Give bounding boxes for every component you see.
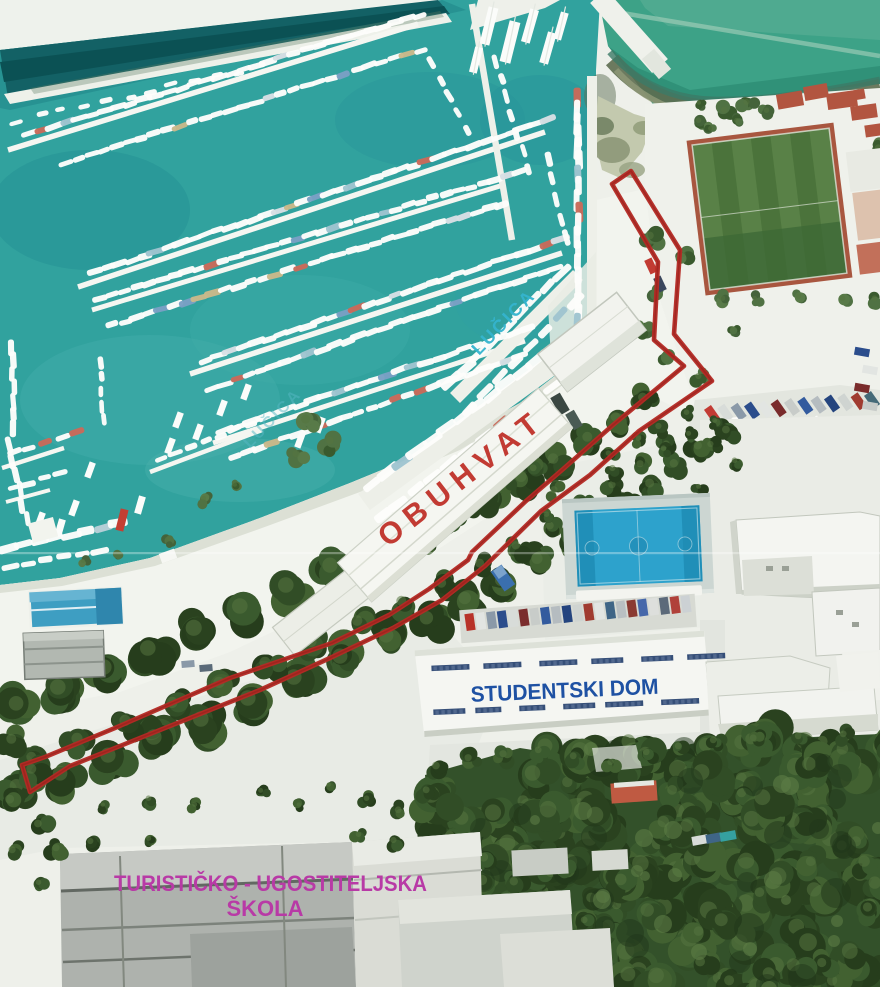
svg-text:ŠKOLA: ŠKOLA — [227, 896, 304, 921]
svg-text:TURISTIČKO - UGOSTITELJSKA: TURISTIČKO - UGOSTITELJSKA — [114, 871, 427, 896]
